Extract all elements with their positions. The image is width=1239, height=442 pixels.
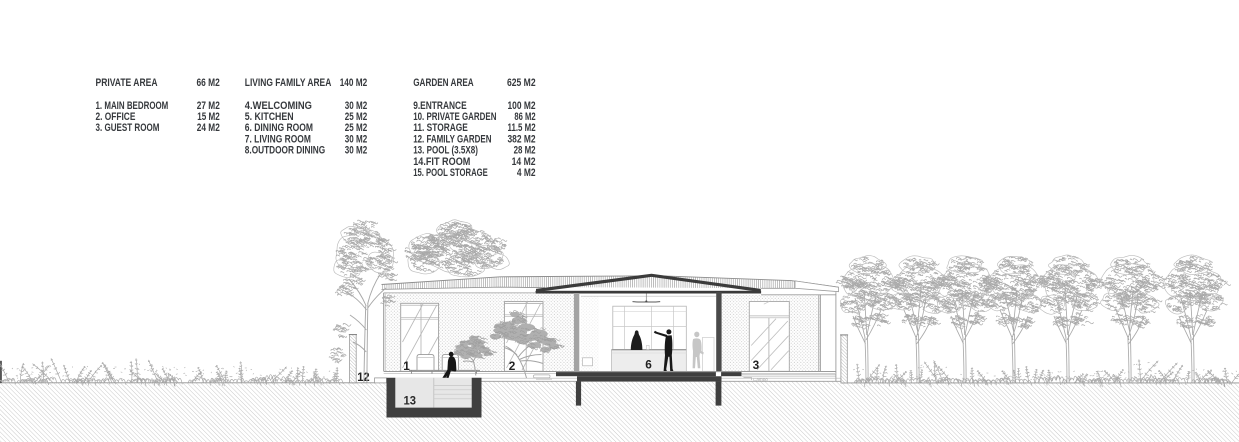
svg-text:15 M2: 15 M2	[197, 111, 220, 123]
svg-text:7. LIVING ROOM: 7. LIVING ROOM	[245, 133, 311, 145]
svg-text:Campo: Campo	[753, 377, 768, 382]
svg-text:140 M2: 140 M2	[340, 77, 368, 89]
svg-text:2. OFFICE: 2. OFFICE	[96, 111, 136, 123]
svg-text:25 M2: 25 M2	[345, 111, 367, 123]
svg-text:24 M2: 24 M2	[197, 122, 220, 134]
svg-text:1. MAIN BEDROOM: 1. MAIN BEDROOM	[96, 100, 169, 112]
svg-text:4.WELCOMING: 4.WELCOMING	[245, 100, 312, 112]
svg-text:12. FAMILY GARDEN: 12. FAMILY GARDEN	[413, 133, 491, 145]
svg-text:15. POOL STORAGE: 15. POOL STORAGE	[413, 167, 488, 179]
svg-text:14.FIT ROOM: 14.FIT ROOM	[413, 156, 470, 168]
svg-text:14 M2: 14 M2	[512, 156, 536, 168]
svg-text:30 M2: 30 M2	[345, 145, 367, 157]
svg-text:2: 2	[509, 359, 516, 373]
svg-text:9.ENTRANCE: 9.ENTRANCE	[413, 100, 467, 112]
svg-text:100 M2: 100 M2	[508, 100, 536, 112]
svg-text:27 M2: 27 M2	[197, 100, 220, 112]
svg-text:86 M2: 86 M2	[514, 111, 535, 123]
svg-text:25 M2: 25 M2	[345, 122, 367, 134]
svg-text:GARDEN AREA: GARDEN AREA	[413, 77, 474, 89]
svg-text:13. POOL (3.5X8): 13. POOL (3.5X8)	[413, 145, 478, 157]
svg-text:3: 3	[753, 358, 760, 372]
svg-text:LIVING FAMILY AREA: LIVING FAMILY AREA	[245, 77, 332, 89]
svg-text:4 M2: 4 M2	[517, 167, 536, 179]
svg-text:11. STORAGE: 11. STORAGE	[413, 122, 468, 134]
svg-text:10. PRIVATE GARDEN: 10. PRIVATE GARDEN	[413, 111, 496, 123]
svg-text:30 M2: 30 M2	[345, 100, 367, 112]
svg-text:11.5 M2: 11.5 M2	[508, 122, 536, 134]
svg-text:6: 6	[645, 358, 652, 372]
svg-text:13: 13	[404, 393, 417, 407]
svg-text:30 M2: 30 M2	[345, 133, 367, 145]
svg-text:3. GUEST ROOM: 3. GUEST ROOM	[96, 122, 160, 134]
svg-text:PRIVATE AREA: PRIVATE AREA	[96, 77, 158, 89]
svg-text:66 M2: 66 M2	[197, 77, 220, 89]
svg-text:625 M2: 625 M2	[507, 77, 536, 89]
svg-text:6. DINING ROOM: 6. DINING ROOM	[245, 122, 313, 134]
svg-text:382 M2: 382 M2	[508, 133, 536, 145]
svg-text:28 M2: 28 M2	[514, 145, 536, 157]
svg-text:5. KITCHEN: 5. KITCHEN	[245, 111, 294, 123]
svg-text:8.OUTDOOR DINING: 8.OUTDOOR DINING	[245, 145, 325, 157]
